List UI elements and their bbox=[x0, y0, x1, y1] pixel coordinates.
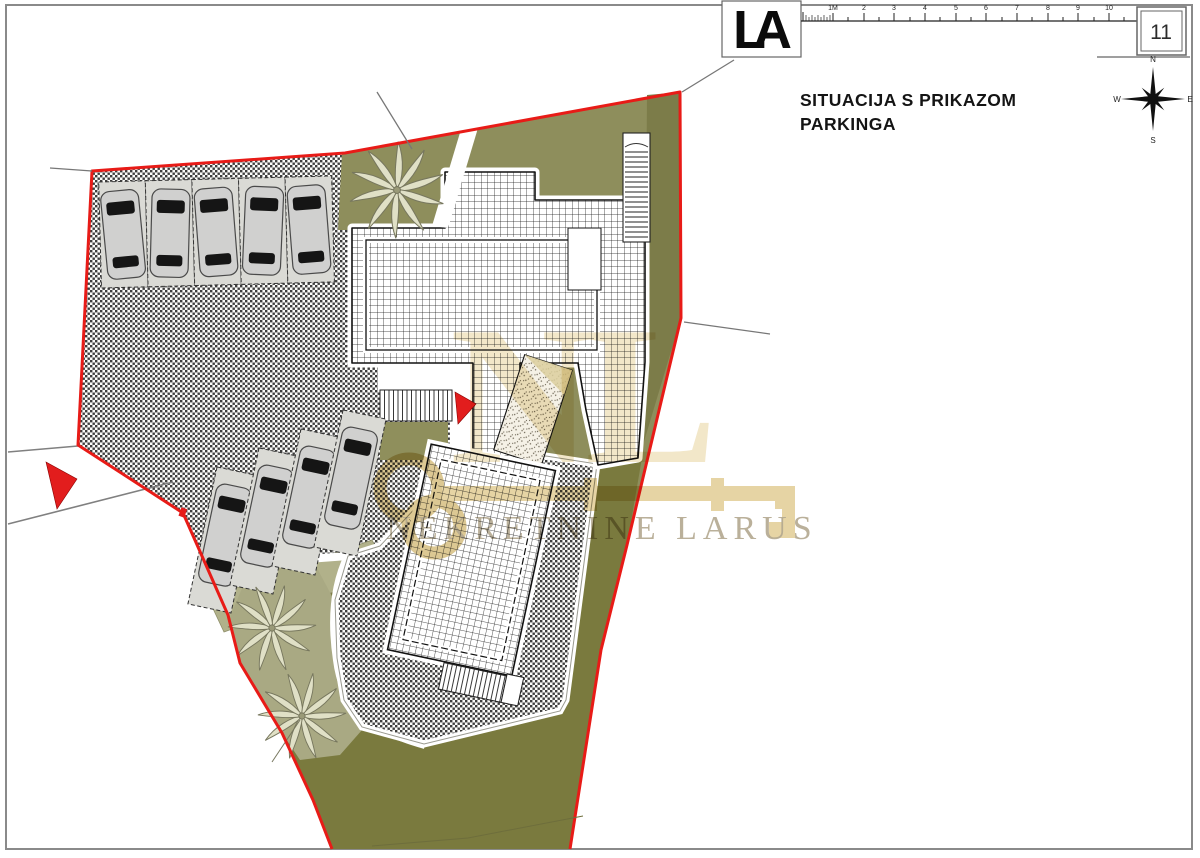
svg-text:6: 6 bbox=[984, 5, 988, 12]
site-plan-svg: LA bbox=[0, 0, 1200, 858]
sheet-number-box: 11 bbox=[1137, 7, 1186, 55]
drawing-sheet: LA bbox=[0, 0, 1200, 858]
svg-text:9: 9 bbox=[1076, 5, 1080, 12]
roof-notch bbox=[568, 228, 601, 290]
car bbox=[100, 189, 146, 280]
watermark-text: NEKRETNINE LARUS bbox=[386, 510, 817, 547]
car bbox=[287, 184, 332, 275]
compass-e: E bbox=[1187, 95, 1192, 104]
svg-text:1M: 1M bbox=[828, 5, 838, 12]
svg-text:5: 5 bbox=[954, 5, 958, 12]
svg-text:2: 2 bbox=[862, 5, 866, 12]
svg-text:10: 10 bbox=[1105, 5, 1113, 12]
title-line-1: SITUACIJA S PRIKAZOM bbox=[800, 90, 1016, 110]
compass-w: W bbox=[1113, 95, 1121, 104]
compass-n: N bbox=[1150, 55, 1156, 64]
watermark-monogram: NL bbox=[450, 286, 709, 505]
car bbox=[242, 186, 284, 276]
svg-text:4: 4 bbox=[923, 5, 927, 12]
compass-s: S bbox=[1150, 136, 1155, 145]
parking-row-top bbox=[99, 176, 335, 288]
title-line-2: PARKINGA bbox=[800, 114, 896, 134]
car bbox=[194, 187, 239, 278]
svg-text:7: 7 bbox=[1015, 5, 1019, 12]
car bbox=[150, 189, 190, 278]
svg-text:8: 8 bbox=[1046, 5, 1050, 12]
stairs-east bbox=[623, 133, 650, 242]
stairs-main bbox=[380, 390, 452, 421]
sheet-number: 11 bbox=[1150, 21, 1172, 44]
svg-text:3: 3 bbox=[892, 5, 896, 12]
